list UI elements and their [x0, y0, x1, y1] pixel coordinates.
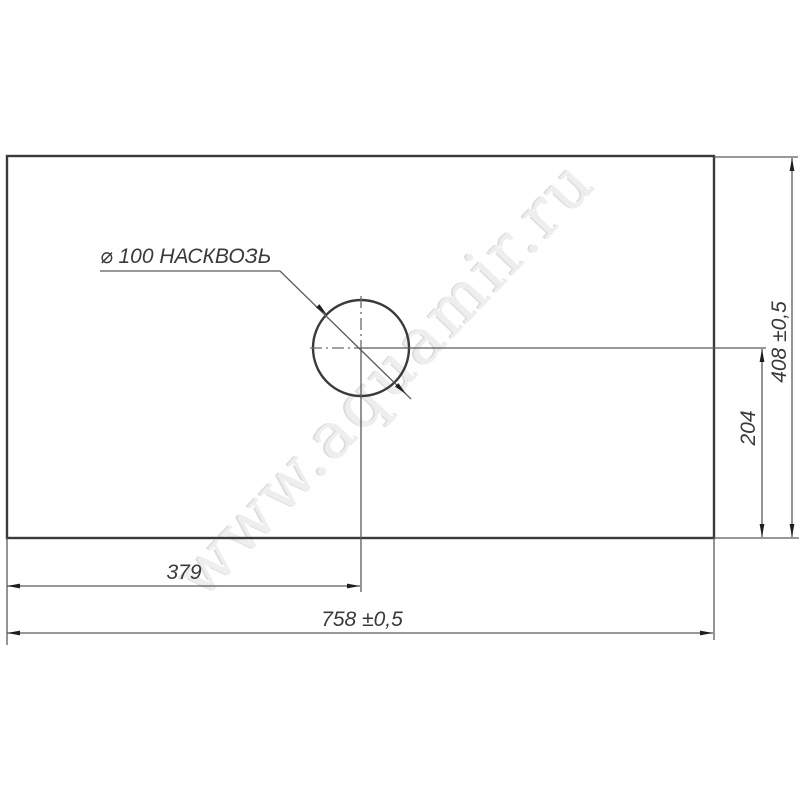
- watermark: www.aquamir.ru www.aquamir.ru www.aquami…: [159, 142, 614, 615]
- dimension-label-204: 204: [737, 410, 760, 446]
- countertop-dimension-drawing: www.aquamir.ru www.aquamir.ru www.aquami…: [0, 0, 800, 800]
- dimension-label-758: 758 ±0,5: [321, 608, 403, 631]
- dimension-hole-from-left: 379: [7, 561, 360, 586]
- dimension-label-379: 379: [166, 561, 201, 584]
- dimension-label-408: 408 ±0,5: [768, 301, 791, 383]
- leader-arrowhead-icon: [316, 304, 329, 317]
- dimension-total-width: 758 ±0,5: [7, 608, 713, 633]
- hole-diameter-callout: ⌀ 100 НАСКВОЗЬ: [100, 245, 271, 268]
- dimension-hole-from-bottom: 204: [737, 349, 762, 537]
- watermark-text: www.aquamir.ru: [161, 145, 610, 613]
- technical-drawing-canvas: www.aquamir.ru www.aquamir.ru www.aquami…: [0, 0, 800, 800]
- dimension-total-height: 408 ±0,5: [768, 158, 792, 537]
